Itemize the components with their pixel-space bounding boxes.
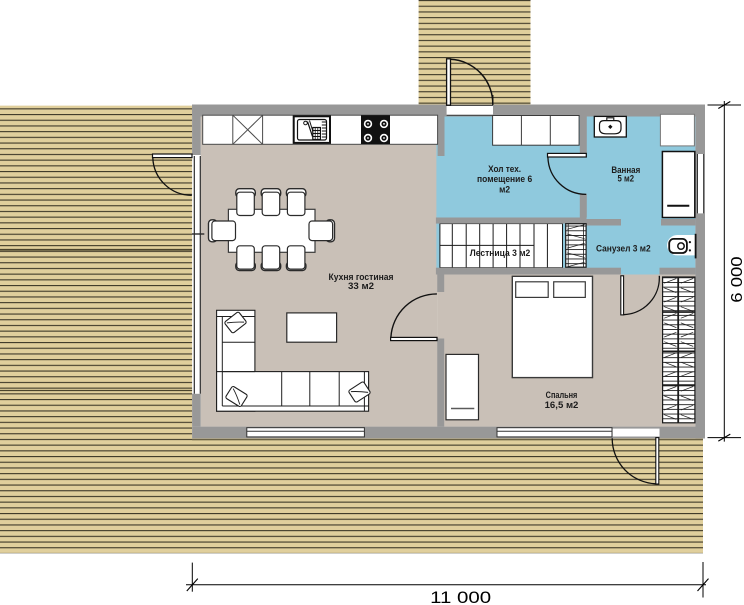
svg-text:5 м2: 5 м2 — [618, 173, 635, 183]
svg-text:помещение 6: помещение 6 — [477, 174, 532, 184]
svg-text:Санузел 3 м2: Санузел 3 м2 — [596, 243, 651, 253]
svg-text:Спальня: Спальня — [546, 390, 578, 400]
svg-text:м2: м2 — [499, 185, 510, 195]
svg-text:6 000: 6 000 — [729, 256, 744, 303]
svg-text:11 000: 11 000 — [430, 589, 491, 605]
svg-text:Хол тех.: Хол тех. — [488, 164, 521, 174]
svg-text:16,5 м2: 16,5 м2 — [545, 400, 579, 410]
svg-text:33 м2: 33 м2 — [348, 281, 374, 291]
svg-text:Лестница 3 м2: Лестница 3 м2 — [470, 248, 531, 258]
